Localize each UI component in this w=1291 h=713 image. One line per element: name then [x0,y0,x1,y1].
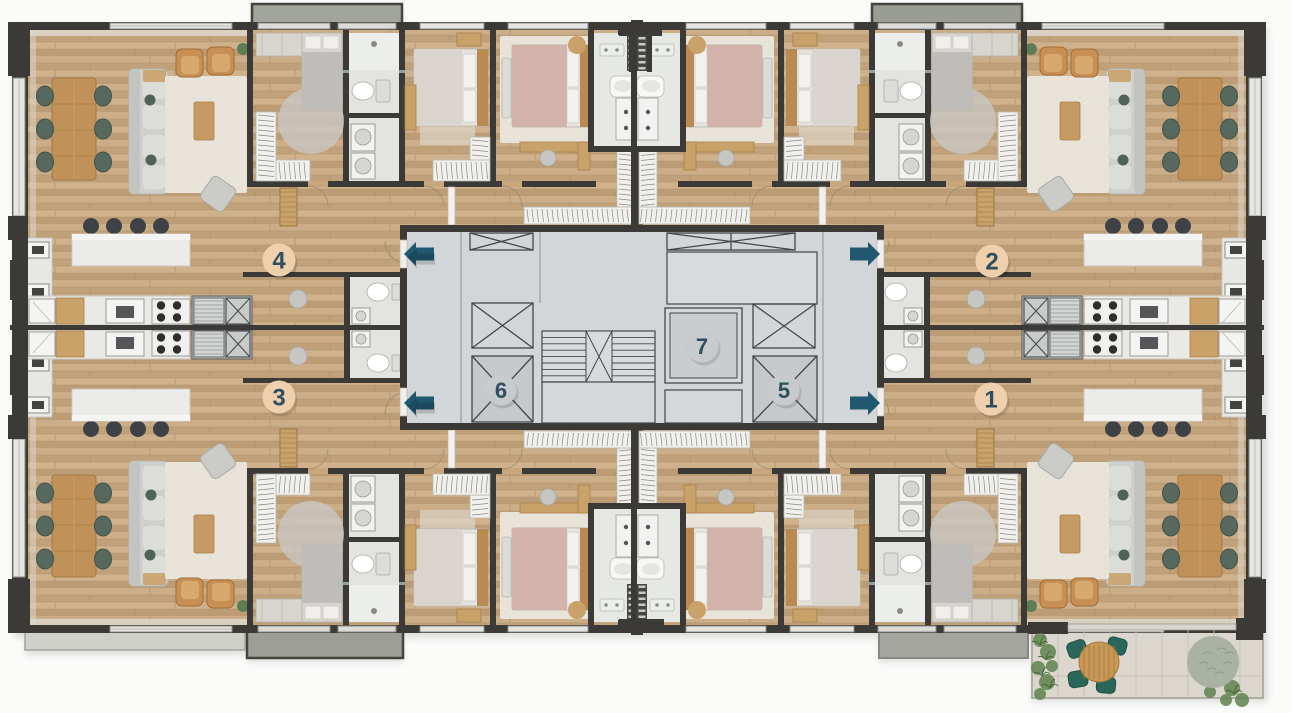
svg-text:6: 6 [495,378,507,403]
svg-text:4: 4 [272,248,286,275]
svg-text:3: 3 [272,385,285,412]
svg-text:5: 5 [778,378,790,403]
svg-text:1: 1 [984,387,997,414]
svg-text:2: 2 [985,249,998,276]
svg-text:7: 7 [696,334,708,359]
